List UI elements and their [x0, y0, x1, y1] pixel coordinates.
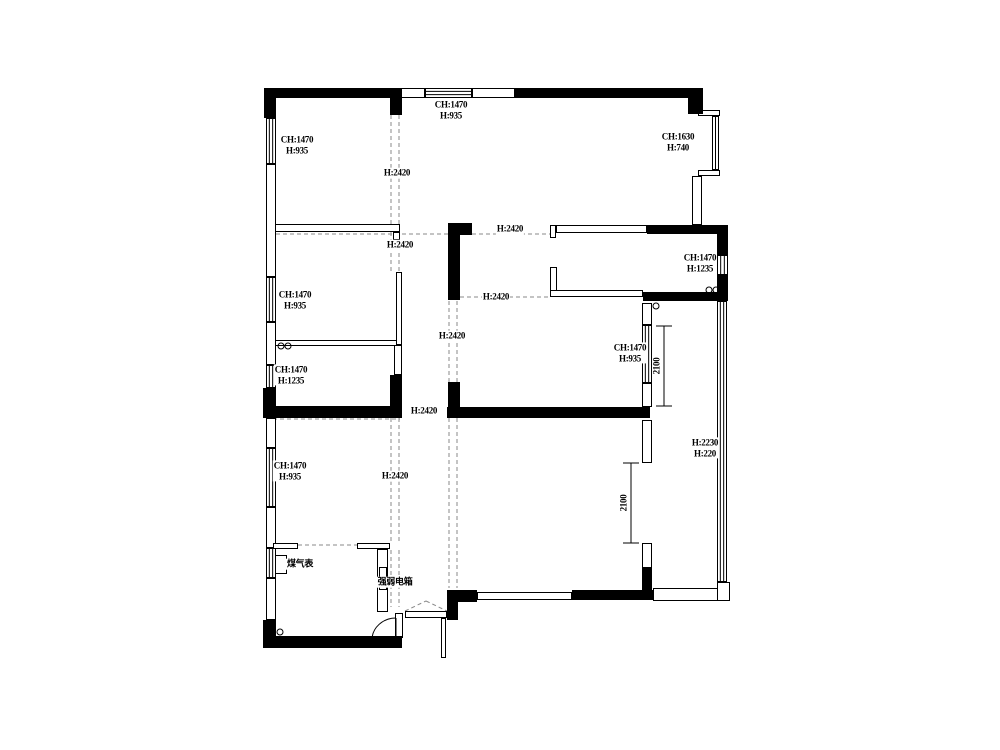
- dimension-label: CH:1470 H:935: [613, 342, 647, 363]
- window-frame: [267, 549, 276, 578]
- floorplan-svg: [0, 0, 1000, 750]
- solid-wall: [642, 567, 652, 593]
- solid-wall: [264, 88, 402, 98]
- solid-wall: [515, 88, 703, 98]
- outline-wall: [478, 593, 572, 600]
- dimension-label: CH:1470 H:935: [278, 289, 312, 310]
- outline-wall: [358, 544, 390, 549]
- solid-wall: [572, 590, 653, 600]
- dashed-guide-line: [426, 601, 447, 611]
- window-frame: [718, 256, 728, 275]
- dimension-label: H:2420: [386, 240, 414, 251]
- dimension-label: CH:1630 H:740: [661, 131, 695, 152]
- outline-wall: [551, 268, 557, 292]
- outline-wall: [551, 226, 556, 238]
- solid-wall: [448, 235, 460, 300]
- dimension-label: H:2230 H:220: [691, 437, 719, 458]
- fixture-circle: [277, 629, 283, 635]
- outline-wall: [643, 421, 652, 463]
- solid-wall: [447, 407, 650, 418]
- floor-plan-canvas: CH:1470 H:935CH:1470 H:935CH:1630 H:740C…: [0, 0, 1000, 750]
- entry-door-sill: [406, 612, 447, 618]
- solid-wall: [264, 636, 402, 648]
- dimension-label: H:2420: [410, 406, 438, 417]
- outline-wall: [274, 544, 298, 549]
- outline-wall: [276, 225, 400, 232]
- entry-door-leaf: [442, 619, 446, 658]
- outline-wall: [718, 583, 730, 601]
- dimension-label: H:2420: [383, 168, 411, 179]
- solid-wall: [390, 88, 402, 115]
- solid-wall: [647, 225, 722, 234]
- outline-wall: [394, 233, 400, 240]
- dimension-label: 强弱电箱: [377, 577, 414, 588]
- outline-wall: [643, 304, 652, 325]
- dimension-label: H:2420: [438, 331, 466, 342]
- solid-wall: [688, 98, 703, 114]
- outline-wall: [396, 614, 403, 638]
- dimension-label: 煤气表: [286, 559, 314, 570]
- outline-wall: [699, 171, 720, 176]
- dimension-label: CH:1470 H:935: [273, 460, 307, 481]
- dashed-guide-line: [405, 601, 426, 611]
- dimension-label: CH:1470 H:1235: [683, 252, 717, 273]
- dimension-label: H:2420: [381, 471, 409, 482]
- dimension-label: 2100: [652, 357, 663, 376]
- outline-wall: [397, 273, 402, 345]
- fixture-circle: [653, 303, 659, 309]
- outline-wall: [557, 226, 647, 233]
- dimension-label: CH:1470 H:1235: [274, 364, 308, 385]
- solid-wall: [264, 406, 402, 418]
- outline-wall: [267, 508, 276, 548]
- outline-wall: [267, 579, 276, 620]
- outline-wall: [551, 291, 643, 297]
- dimension-label: CH:1470 H:935: [280, 134, 314, 155]
- outline-wall: [643, 544, 652, 568]
- outline-wall: [276, 341, 400, 346]
- solid-wall: [448, 223, 472, 235]
- outline-wall: [267, 323, 276, 365]
- outline-wall: [473, 89, 515, 98]
- dimension-label: CH:1470 H:935: [434, 99, 468, 120]
- solid-wall: [447, 600, 458, 620]
- outline-wall: [643, 384, 652, 407]
- outline-wall: [693, 177, 702, 225]
- solid-wall: [390, 375, 402, 418]
- window-frame: [426, 89, 472, 98]
- window-frame: [267, 119, 276, 164]
- outline-wall: [276, 556, 287, 574]
- solid-wall: [264, 88, 276, 118]
- solid-wall: [717, 225, 728, 255]
- outline-wall: [267, 165, 276, 277]
- dimension-label: 2100: [619, 494, 630, 513]
- window-frame: [267, 278, 276, 322]
- dimension-label: H:2420: [496, 224, 524, 235]
- dimension-label: H:2420: [482, 292, 510, 303]
- outline-wall: [267, 419, 276, 448]
- outline-wall: [395, 346, 402, 375]
- outline-wall: [401, 89, 425, 98]
